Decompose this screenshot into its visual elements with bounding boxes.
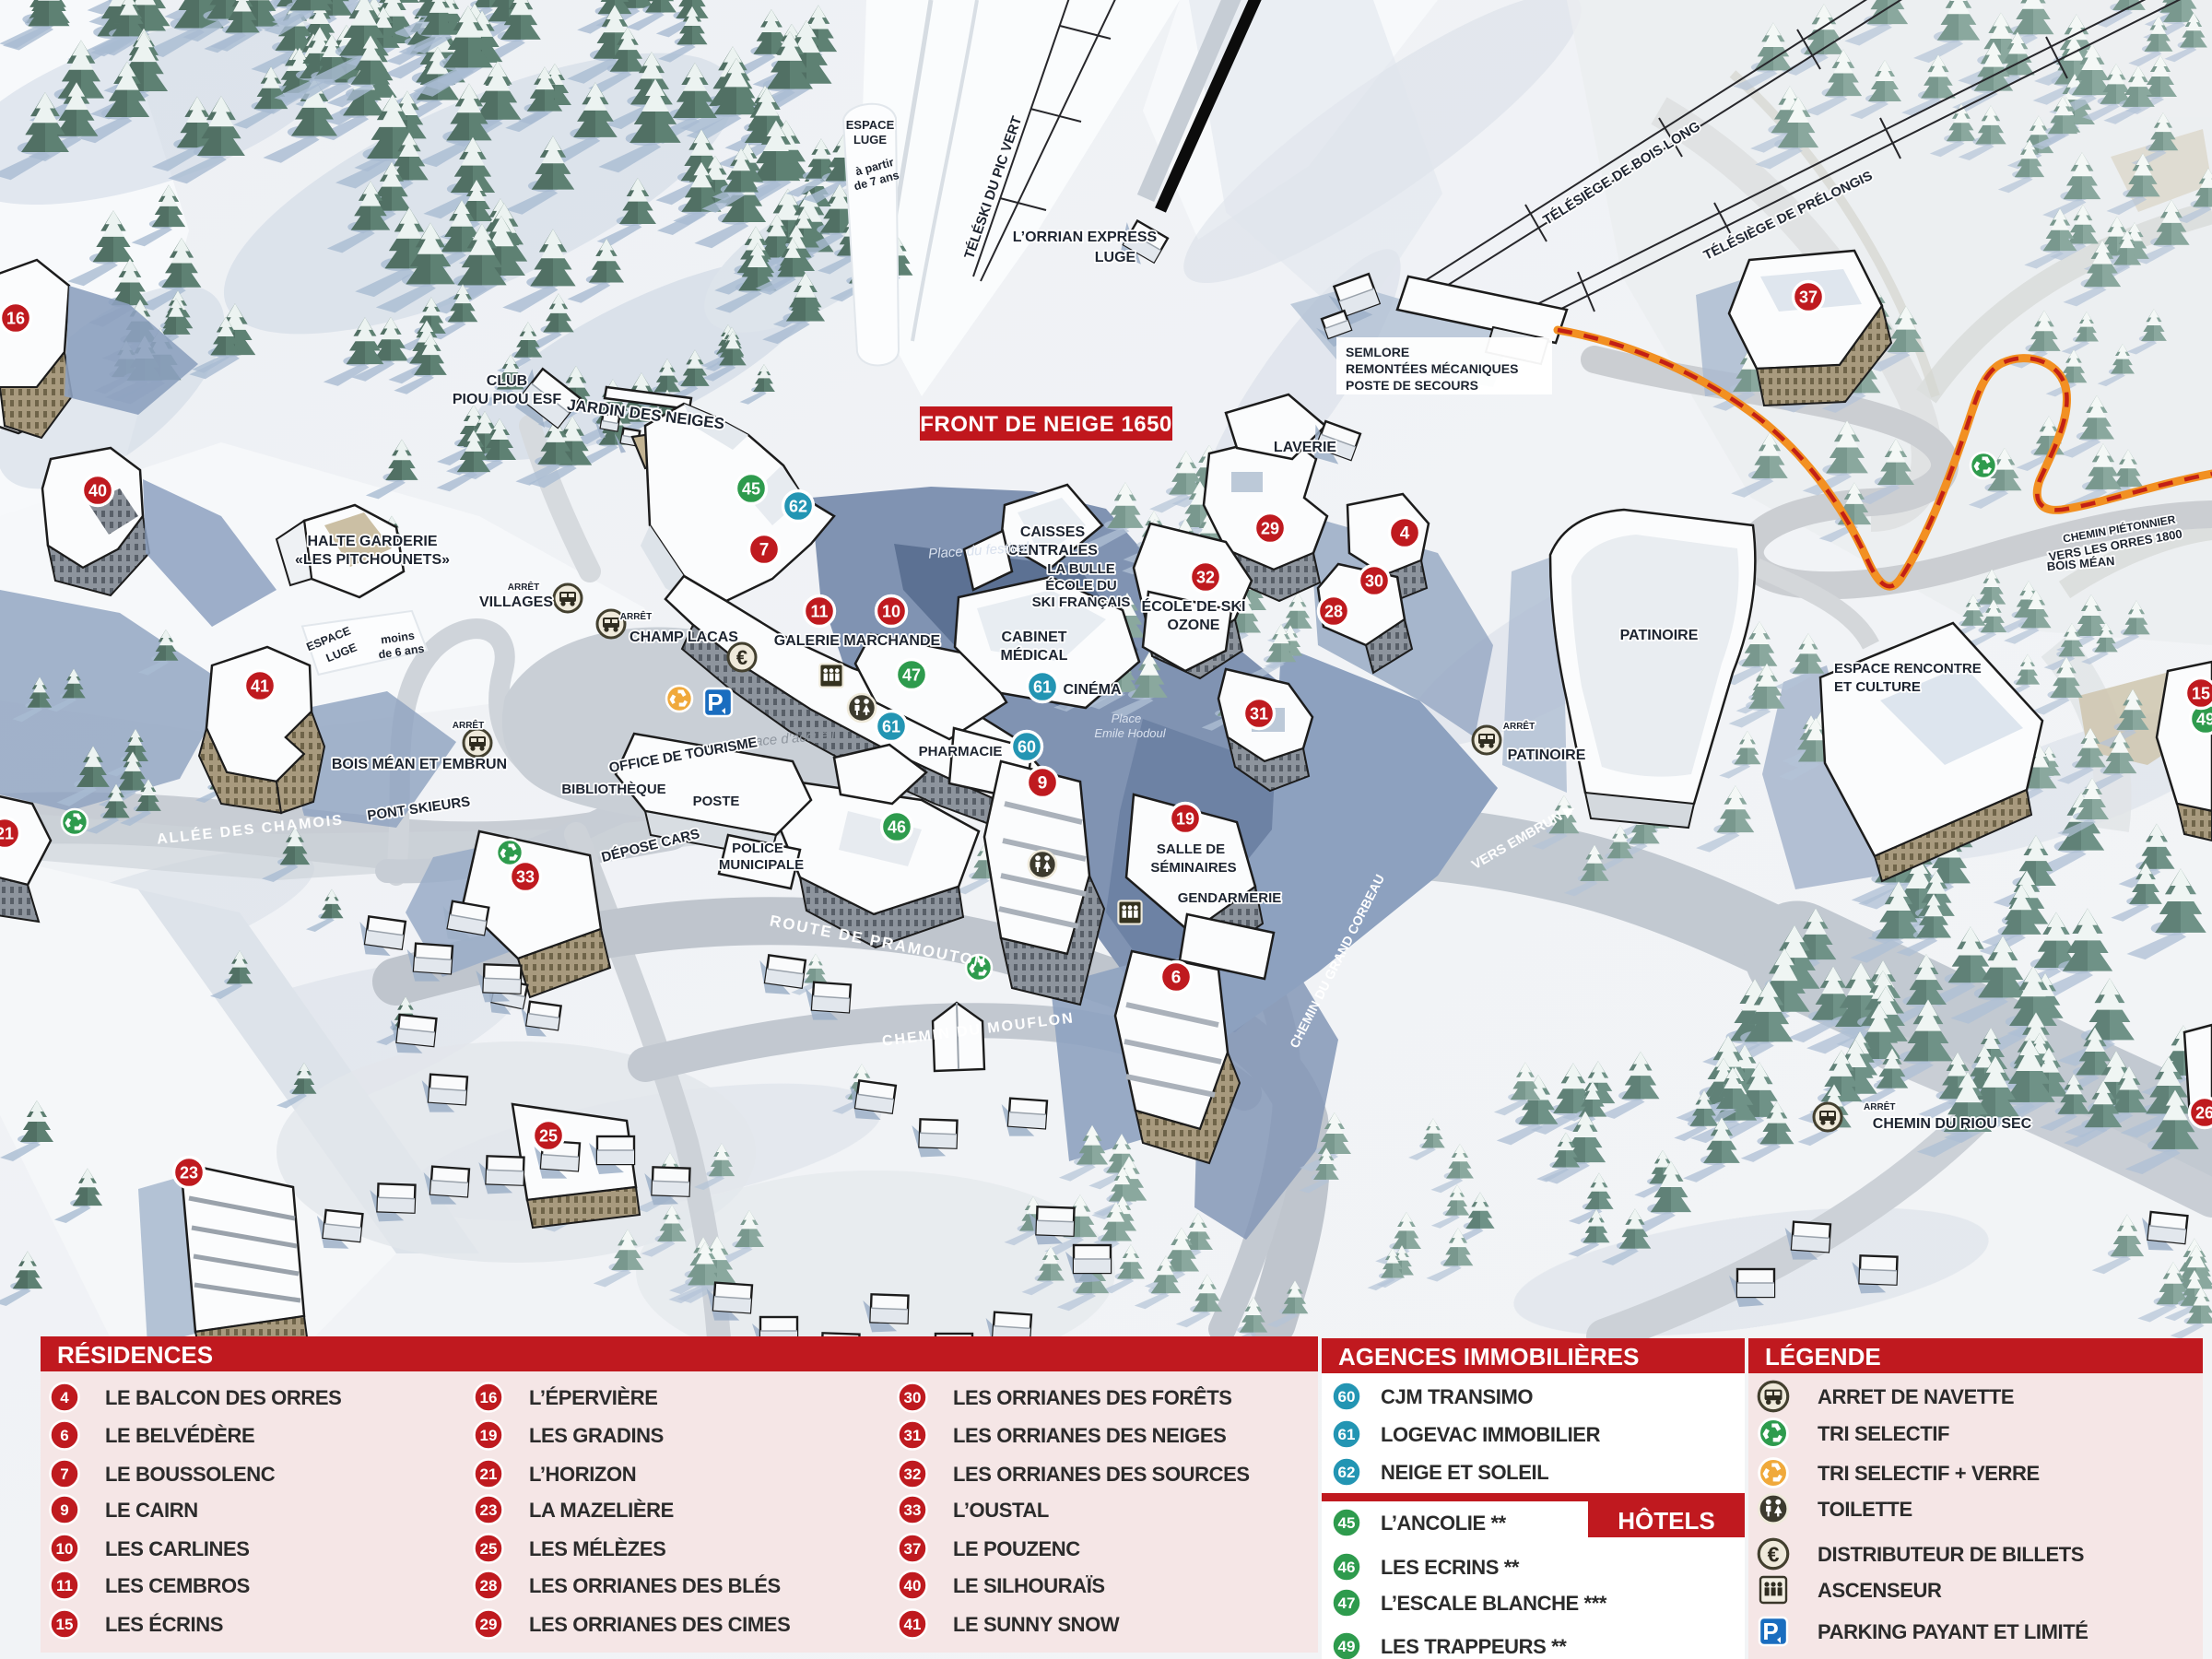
- svg-text:LES ORRIANES DES SOURCES: LES ORRIANES DES SOURCES: [953, 1463, 1250, 1486]
- svg-text:41: 41: [904, 1616, 922, 1633]
- svg-text:CINÉMA: CINÉMA: [1063, 680, 1122, 698]
- svg-text:HALTE GARDERIE: HALTE GARDERIE: [307, 534, 437, 549]
- svg-text:6: 6: [60, 1427, 68, 1444]
- svg-text:31: 31: [904, 1427, 922, 1444]
- svg-text:CHEMIN DU RIOU SEC: CHEMIN DU RIOU SEC: [1873, 1116, 2032, 1132]
- svg-text:BIBLIOTHÈQUE: BIBLIOTHÈQUE: [561, 782, 665, 797]
- svg-text:7: 7: [759, 541, 770, 560]
- svg-text:LES ÉCRINS: LES ÉCRINS: [105, 1613, 223, 1636]
- svg-text:NEIGE ET SOLEIL: NEIGE ET SOLEIL: [1381, 1461, 1548, 1484]
- svg-text:L’ORRIAN EXPRESS: L’ORRIAN EXPRESS: [1013, 229, 1158, 245]
- svg-text:37: 37: [904, 1540, 922, 1558]
- svg-text:Emile Hodoul: Emile Hodoul: [1094, 726, 1166, 740]
- svg-text:37: 37: [1799, 288, 1818, 307]
- svg-text:32: 32: [1196, 569, 1215, 587]
- svg-text:SÉMINAIRES: SÉMINAIRES: [1150, 860, 1236, 876]
- svg-text:19: 19: [1176, 810, 1194, 829]
- svg-text:MUNICIPALE: MUNICIPALE: [719, 857, 804, 873]
- svg-text:LE POUZENC: LE POUZENC: [953, 1537, 1080, 1560]
- svg-text:LES GRADINS: LES GRADINS: [529, 1424, 664, 1447]
- svg-text:LUGE: LUGE: [853, 133, 887, 147]
- svg-text:L’ANCOLIE **: L’ANCOLIE **: [1381, 1512, 1507, 1535]
- svg-text:ARRÊT: ARRÊT: [1503, 720, 1535, 732]
- svg-text:LE CAIRN: LE CAIRN: [105, 1499, 198, 1522]
- svg-text:«LES PITCHOUNETS»: «LES PITCHOUNETS»: [295, 552, 450, 568]
- svg-text:CHAMP LACAS: CHAMP LACAS: [629, 629, 738, 645]
- svg-text:26: 26: [2195, 1104, 2212, 1123]
- svg-text:45: 45: [742, 480, 760, 499]
- svg-text:L’ESCALE BLANCHE ***: L’ESCALE BLANCHE ***: [1381, 1592, 1607, 1615]
- svg-text:FRONT DE NEIGE 1650: FRONT DE NEIGE 1650: [920, 412, 1172, 437]
- svg-text:PHARMACIE: PHARMACIE: [919, 744, 1003, 759]
- svg-text:PIOU PIOU ESF: PIOU PIOU ESF: [453, 392, 561, 407]
- svg-text:L’OUSTAL: L’OUSTAL: [953, 1499, 1049, 1522]
- svg-text:11: 11: [56, 1577, 73, 1594]
- svg-text:ARRÊT: ARRÊT: [1864, 1100, 1895, 1112]
- svg-text:CABINET: CABINET: [1001, 629, 1066, 645]
- svg-text:33: 33: [904, 1501, 922, 1519]
- svg-text:45: 45: [1338, 1514, 1356, 1532]
- svg-text:30: 30: [1365, 572, 1383, 591]
- svg-text:62: 62: [789, 498, 807, 516]
- svg-text:P: P: [1762, 1618, 1778, 1645]
- svg-text:PATINOIRE: PATINOIRE: [1508, 747, 1586, 763]
- svg-text:SALLE DE: SALLE DE: [1157, 841, 1225, 857]
- svg-text:TRI SELECTIF + VERRE: TRI SELECTIF + VERRE: [1818, 1462, 2040, 1485]
- svg-text:LE BOUSSOLENC: LE BOUSSOLENC: [105, 1463, 276, 1486]
- svg-text:LE BELVÉDÈRE: LE BELVÉDÈRE: [105, 1424, 254, 1447]
- svg-text:LES ORRIANES DES CIMES: LES ORRIANES DES CIMES: [529, 1613, 790, 1636]
- svg-text:POSTE DE SECOURS: POSTE DE SECOURS: [1346, 378, 1478, 393]
- svg-text:DISTRIBUTEUR DE BILLETS: DISTRIBUTEUR DE BILLETS: [1818, 1543, 2084, 1566]
- svg-text:ASCENSEUR: ASCENSEUR: [1818, 1579, 1942, 1602]
- svg-text:15: 15: [2192, 685, 2210, 703]
- svg-text:ÉCOLE DE SKI: ÉCOLE DE SKI: [1142, 597, 1246, 615]
- svg-text:62: 62: [1338, 1464, 1356, 1481]
- svg-text:LES ORRIANES DES BLÉS: LES ORRIANES DES BLÉS: [529, 1574, 781, 1597]
- svg-text:25: 25: [539, 1127, 558, 1146]
- svg-text:40: 40: [904, 1577, 922, 1594]
- svg-text:LES TRAPPEURS **: LES TRAPPEURS **: [1381, 1635, 1567, 1658]
- svg-text:49: 49: [1338, 1638, 1356, 1655]
- svg-text:LES MÉLÈZES: LES MÉLÈZES: [529, 1537, 665, 1560]
- svg-text:29: 29: [480, 1616, 498, 1633]
- svg-text:GALERIE MARCHANDE: GALERIE MARCHANDE: [774, 633, 941, 649]
- svg-text:CLUB: CLUB: [487, 373, 527, 389]
- svg-text:19: 19: [480, 1427, 498, 1444]
- svg-text:CJM TRANSIMO: CJM TRANSIMO: [1381, 1385, 1533, 1408]
- svg-text:ARRÊT: ARRÊT: [620, 610, 652, 622]
- svg-text:ÉCOLE DU: ÉCOLE DU: [1045, 578, 1117, 594]
- svg-text:32: 32: [904, 1465, 922, 1483]
- svg-text:REMONTÉES MÉCANIQUES: REMONTÉES MÉCANIQUES: [1346, 361, 1518, 376]
- svg-text:30: 30: [904, 1389, 922, 1406]
- svg-text:GENDARMERIE: GENDARMERIE: [1178, 890, 1282, 906]
- svg-text:ARRÊT: ARRÊT: [508, 581, 539, 593]
- svg-text:61: 61: [882, 718, 900, 736]
- svg-text:4: 4: [1400, 524, 1410, 544]
- svg-text:LES CEMBROS: LES CEMBROS: [105, 1574, 250, 1597]
- svg-text:LE BALCON DES ORRES: LE BALCON DES ORRES: [105, 1386, 341, 1409]
- svg-text:33: 33: [516, 868, 535, 887]
- svg-text:21: 21: [0, 825, 14, 843]
- svg-text:LE SUNNY SNOW: LE SUNNY SNOW: [953, 1613, 1120, 1636]
- svg-text:61: 61: [1033, 678, 1052, 697]
- svg-text:L’HORIZON: L’HORIZON: [529, 1463, 636, 1486]
- svg-text:25: 25: [480, 1540, 498, 1558]
- svg-text:46: 46: [888, 818, 906, 837]
- svg-text:PATINOIRE: PATINOIRE: [1620, 628, 1699, 643]
- svg-text:4: 4: [60, 1389, 69, 1406]
- svg-text:HÔTELS: HÔTELS: [1618, 1507, 1714, 1535]
- svg-text:POLICE: POLICE: [732, 841, 783, 856]
- svg-text:TOILETTE: TOILETTE: [1818, 1498, 1912, 1521]
- svg-text:BOIS MÉAN ET EMBRUN: BOIS MÉAN ET EMBRUN: [332, 755, 507, 772]
- svg-text:7: 7: [60, 1465, 68, 1483]
- svg-text:LES ECRINS **: LES ECRINS **: [1381, 1556, 1520, 1579]
- svg-text:41: 41: [251, 677, 269, 696]
- svg-text:LES CARLINES: LES CARLINES: [105, 1537, 250, 1560]
- svg-text:ARRÊT: ARRÊT: [453, 719, 484, 731]
- svg-text:60: 60: [1018, 738, 1036, 757]
- svg-text:ESPACE: ESPACE: [846, 118, 895, 132]
- svg-text:31: 31: [1250, 705, 1268, 724]
- svg-text:MÉDICAL: MÉDICAL: [1001, 646, 1068, 664]
- svg-text:L’ÉPERVIÈRE: L’ÉPERVIÈRE: [529, 1386, 657, 1409]
- svg-text:PARKING PAYANT ET LIMITÉ: PARKING PAYANT ET LIMITÉ: [1818, 1620, 2088, 1643]
- svg-text:ESPACE RENCONTRE: ESPACE RENCONTRE: [1834, 661, 1982, 677]
- svg-text:LA MAZELIÈRE: LA MAZELIÈRE: [529, 1499, 674, 1522]
- svg-text:28: 28: [480, 1577, 498, 1594]
- svg-text:47: 47: [1338, 1594, 1356, 1612]
- svg-text:LE SILHOURAÏS: LE SILHOURAÏS: [953, 1574, 1105, 1597]
- svg-text:29: 29: [1261, 520, 1279, 538]
- svg-text:€: €: [1768, 1542, 1780, 1566]
- svg-text:28: 28: [1324, 603, 1343, 621]
- svg-text:AGENCES IMMOBILIÈRES: AGENCES IMMOBILIÈRES: [1338, 1343, 1639, 1371]
- svg-text:9: 9: [60, 1501, 68, 1519]
- svg-text:€: €: [736, 646, 747, 669]
- svg-text:11: 11: [810, 603, 828, 621]
- svg-text:LOGEVAC IMMOBILIER: LOGEVAC IMMOBILIER: [1381, 1423, 1601, 1446]
- svg-text:ARRET DE NAVETTE: ARRET DE NAVETTE: [1818, 1385, 2014, 1408]
- svg-text:60: 60: [1338, 1388, 1356, 1406]
- svg-text:10: 10: [56, 1540, 74, 1558]
- svg-text:6: 6: [1171, 969, 1182, 988]
- svg-text:TRI SELECTIF: TRI SELECTIF: [1818, 1422, 1949, 1445]
- svg-text:10: 10: [882, 603, 900, 621]
- svg-text:LES ORRIANES DES FORÊTS: LES ORRIANES DES FORÊTS: [953, 1386, 1232, 1409]
- svg-text:47: 47: [902, 666, 921, 685]
- svg-text:49: 49: [2196, 711, 2212, 729]
- svg-text:16: 16: [480, 1389, 498, 1406]
- svg-text:16: 16: [6, 310, 25, 328]
- svg-text:CAISSES: CAISSES: [1020, 524, 1086, 540]
- svg-text:SEMLORE: SEMLORE: [1346, 345, 1409, 359]
- svg-text:POSTE: POSTE: [693, 794, 740, 809]
- svg-text:46: 46: [1338, 1559, 1356, 1576]
- svg-text:LAVERIE: LAVERIE: [1274, 440, 1336, 455]
- svg-text:RÉSIDENCES: RÉSIDENCES: [57, 1341, 213, 1369]
- svg-text:ET CULTURE: ET CULTURE: [1834, 679, 1921, 695]
- svg-text:23: 23: [480, 1501, 498, 1519]
- svg-text:LÉGENDE: LÉGENDE: [1765, 1343, 1881, 1371]
- svg-text:LUGE: LUGE: [1095, 250, 1136, 265]
- svg-text:Place: Place: [1112, 712, 1142, 725]
- svg-text:LES ORRIANES DES NEIGES: LES ORRIANES DES NEIGES: [953, 1424, 1226, 1447]
- svg-text:40: 40: [88, 482, 107, 500]
- svg-text:9: 9: [1038, 774, 1048, 794]
- svg-text:61: 61: [1338, 1426, 1356, 1443]
- svg-text:15: 15: [56, 1616, 74, 1633]
- svg-text:VILLAGES: VILLAGES: [479, 594, 553, 610]
- svg-text:SKI FRANÇAIS: SKI FRANÇAIS: [1032, 594, 1131, 610]
- svg-text:OZONE: OZONE: [1168, 618, 1220, 633]
- svg-text:23: 23: [180, 1164, 198, 1182]
- svg-text:21: 21: [480, 1465, 498, 1483]
- svg-text:P: P: [707, 688, 723, 716]
- svg-text:LA BULLE: LA BULLE: [1047, 561, 1115, 577]
